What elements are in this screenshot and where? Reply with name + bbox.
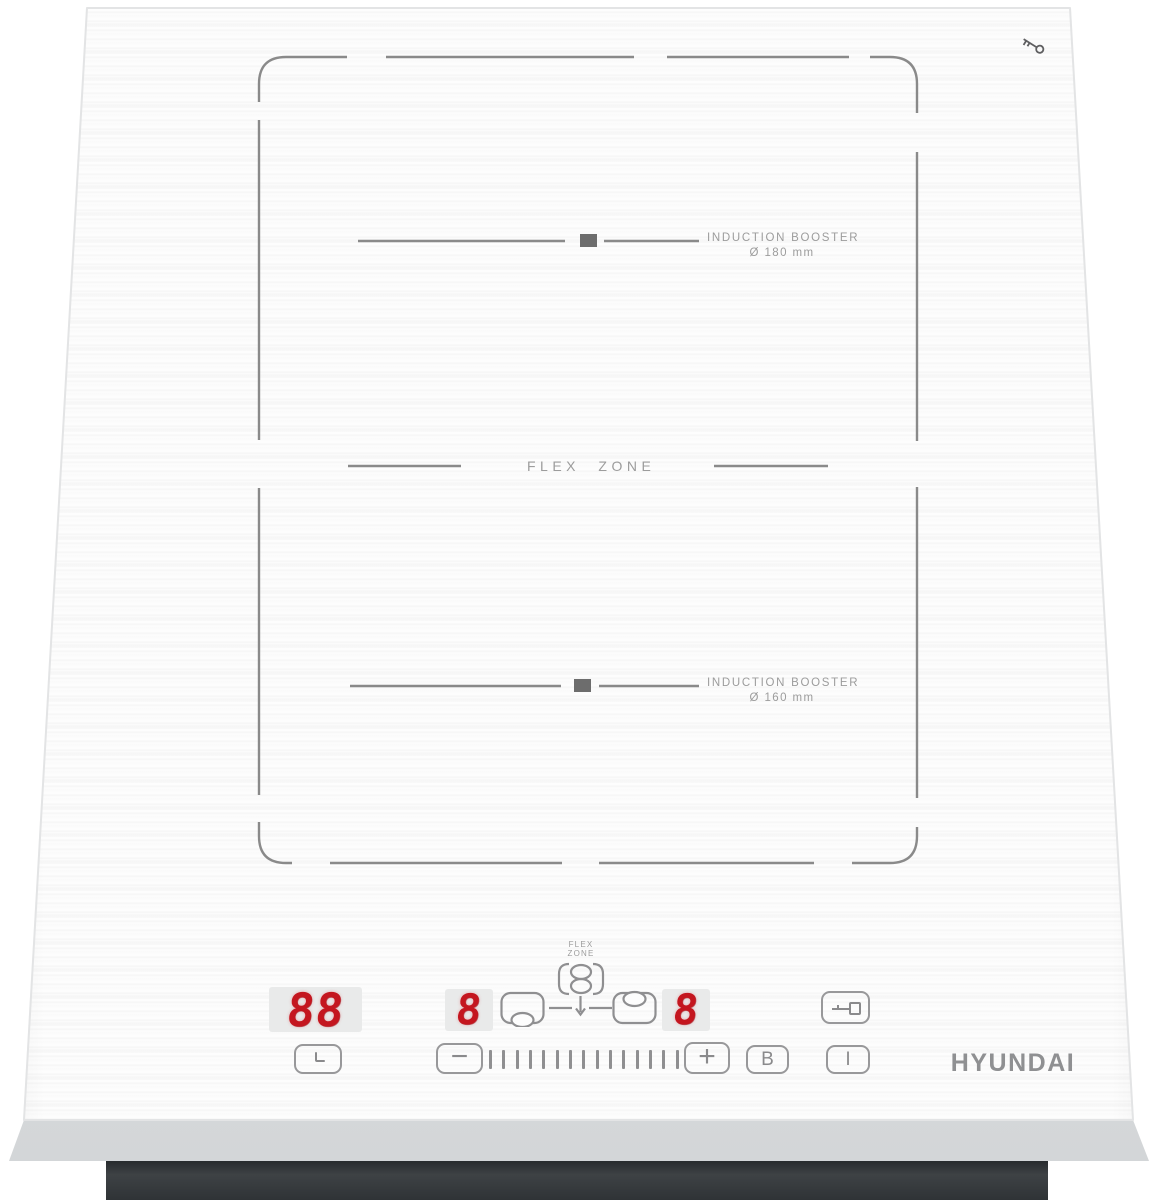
booster-180-diameter: Ø 180 mm <box>707 247 857 259</box>
minus-label: − <box>451 1042 469 1072</box>
slider-tick <box>649 1050 652 1069</box>
timer-display: 88 <box>269 987 362 1032</box>
slider-tick <box>676 1050 679 1069</box>
slider-tick <box>622 1050 625 1069</box>
booster-160-title: INDUCTION BOOSTER <box>707 677 857 689</box>
timer-button[interactable] <box>294 1044 342 1074</box>
flex-zone-button[interactable]: FLEX ZONE <box>548 940 614 1002</box>
plus-button[interactable]: + <box>684 1042 730 1074</box>
zone-left-display-value: 8 <box>454 989 484 1031</box>
flex-key-label: FLEX ZONE <box>548 940 614 958</box>
flex-key-label-line2: ZONE <box>548 949 614 958</box>
booster-180-title: INDUCTION BOOSTER <box>707 232 857 244</box>
front-zone-select-button[interactable] <box>499 990 546 1032</box>
hob-base <box>106 1158 1048 1200</box>
glass-surface <box>0 0 1156 1200</box>
slider-tick <box>596 1050 599 1069</box>
plus-label: + <box>698 1042 716 1072</box>
power-slider[interactable] <box>489 1050 679 1069</box>
zone-right-display-value: 8 <box>671 989 701 1031</box>
booster-160-diameter: Ø 160 mm <box>707 692 857 704</box>
slider-tick <box>582 1050 585 1069</box>
slider-tick <box>609 1050 612 1069</box>
timer-display-value: 88 <box>284 987 346 1033</box>
pot-rear-zone-icon <box>611 990 658 1027</box>
power-button[interactable]: I <box>826 1045 870 1074</box>
key-icon <box>1014 29 1052 61</box>
flex-key-label-line1: FLEX <box>548 940 614 949</box>
clock-hands-icon <box>307 1050 329 1068</box>
slider-tick <box>662 1050 665 1069</box>
power-label: I <box>845 1050 850 1069</box>
booster-label: B <box>761 1050 774 1069</box>
pot-front-zone-icon <box>499 990 546 1027</box>
key-lock-icon <box>828 996 864 1020</box>
zone-right-display: 8 <box>662 989 710 1031</box>
flex-zone-label: FLEX ZONE <box>527 458 655 474</box>
slider-tick <box>556 1050 559 1069</box>
slider-tick <box>516 1050 519 1069</box>
slider-tick <box>529 1050 532 1069</box>
booster-180-label: INDUCTION BOOSTER Ø 180 mm <box>707 232 857 259</box>
slider-tick <box>489 1050 492 1069</box>
brand-logo: HYUNDAI <box>938 1049 1088 1078</box>
rear-zone-select-button[interactable] <box>611 990 658 1032</box>
slider-tick <box>569 1050 572 1069</box>
slider-tick <box>636 1050 639 1069</box>
minus-button[interactable]: − <box>436 1043 483 1074</box>
slider-tick <box>502 1050 505 1069</box>
zone-left-display: 8 <box>445 989 493 1031</box>
booster-160-label: INDUCTION BOOSTER Ø 160 mm <box>707 677 857 704</box>
induction-hob-photo: INDUCTION BOOSTER Ø 180 mm FLEX ZONE IND… <box>0 0 1156 1200</box>
booster-button[interactable]: B <box>746 1045 789 1074</box>
lock-button[interactable] <box>821 991 870 1024</box>
flex-zone-icon <box>554 961 608 997</box>
slider-tick <box>542 1050 545 1069</box>
